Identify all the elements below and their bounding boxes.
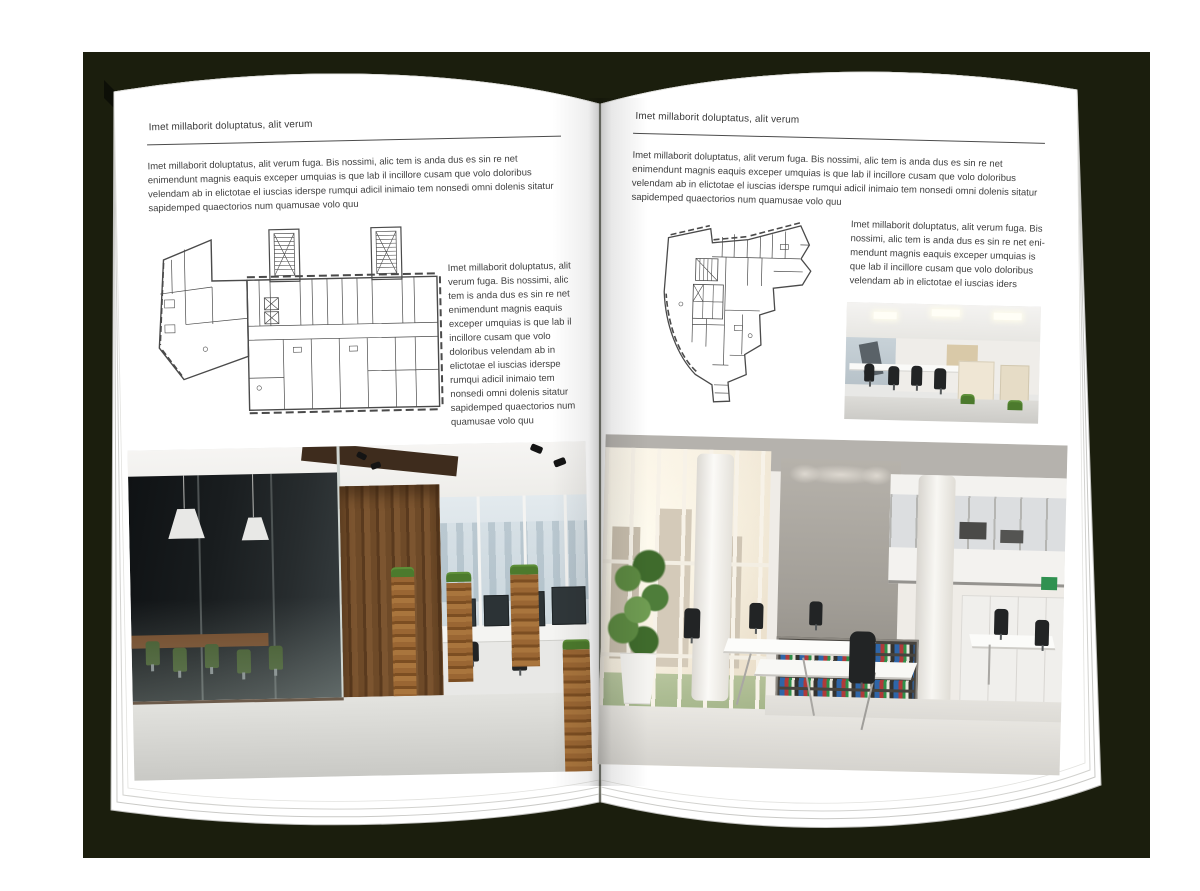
office-chair	[684, 608, 701, 638]
planter-grass	[446, 574, 471, 583]
monitor	[552, 586, 587, 625]
left-intro-paragraph: Imet millaborit doluptatus, alit verum f…	[147, 152, 562, 217]
white-cabinets	[959, 595, 1065, 712]
wood-planter	[446, 582, 473, 682]
photo-dark-office	[127, 441, 592, 781]
concrete-floor	[133, 692, 593, 781]
office-chair-foreground	[849, 632, 876, 685]
glass-reflection	[128, 473, 343, 702]
binder-row	[779, 678, 914, 690]
ceiling-light	[932, 309, 959, 317]
wood-planter	[391, 577, 416, 696]
plant	[961, 396, 975, 404]
left-page: Imet millaborit doluptatus, alit verum I…	[105, 57, 607, 793]
left-header-rule	[147, 136, 561, 146]
ceiling-light	[994, 313, 1021, 321]
planter-grass	[562, 641, 590, 650]
left-side-text: Imet millaborit doluptatus, alit verum f…	[448, 259, 577, 430]
right-page-header: Imet millaborit doluptatus, alit verum	[635, 111, 1035, 132]
wood-planter	[510, 574, 539, 667]
office-chair	[749, 603, 764, 629]
planter-grass	[391, 569, 414, 577]
right-intro-paragraph: Imet millaborit doluptatus, alit verum f…	[631, 149, 1044, 215]
right-page: Imet millaborit doluptatus, alit verum I…	[591, 56, 1096, 794]
planter-grass	[510, 566, 538, 575]
monitor	[483, 595, 509, 627]
right-header-rule	[633, 133, 1045, 144]
wood-cabinet	[1000, 364, 1030, 402]
concrete-wall	[776, 458, 901, 646]
right-side-text: Imet millaborit doluptatus, alit verum f…	[849, 218, 1051, 293]
brochure-spread-mockup: Imet millaborit doluptatus, alit verum I…	[0, 0, 1200, 891]
column	[692, 453, 735, 701]
exit-sign	[1041, 577, 1057, 591]
wood-planter	[562, 649, 592, 772]
column	[913, 475, 956, 707]
office-chair	[994, 609, 1009, 635]
floor-plan-left	[151, 224, 450, 420]
vent-grille	[1000, 530, 1023, 544]
office-chair	[864, 363, 874, 381]
office-chair	[934, 369, 947, 390]
vent-grille	[959, 522, 987, 539]
left-page-header: Imet millaborit doluptatus, alit verum	[149, 114, 549, 133]
floor-plan-right	[648, 213, 845, 416]
plant	[1007, 402, 1023, 410]
photo-small-office	[844, 302, 1041, 424]
photo-atrium-office	[598, 434, 1068, 775]
ceiling-light	[874, 312, 897, 320]
office-chair	[911, 366, 922, 386]
office-chair	[1035, 620, 1050, 646]
office-chair	[809, 601, 823, 625]
office-chair	[888, 366, 899, 385]
plant-foliage	[605, 540, 677, 667]
